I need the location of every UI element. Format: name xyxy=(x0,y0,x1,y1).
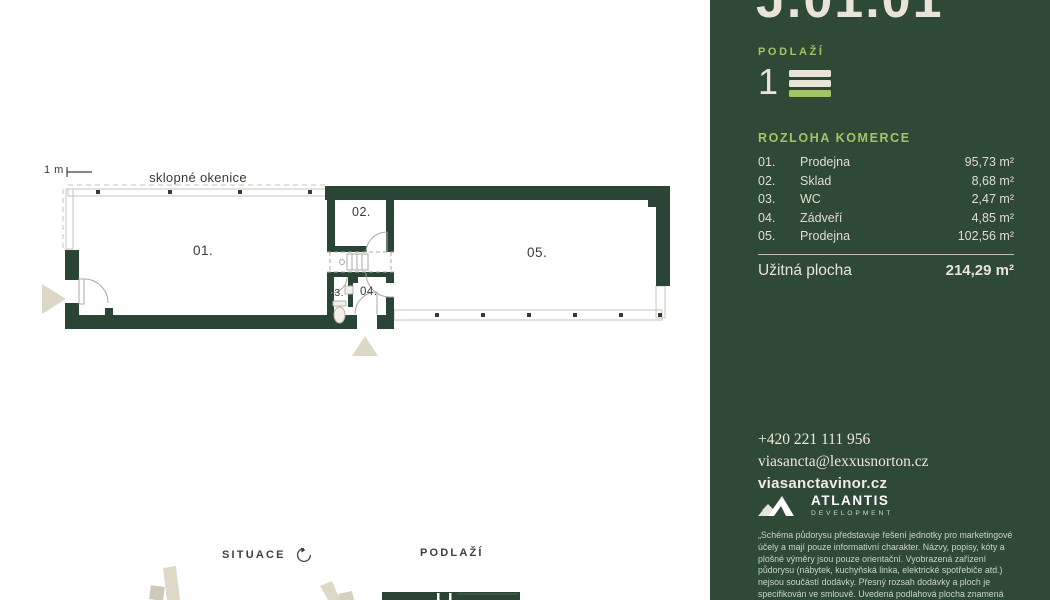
room-number: 02. xyxy=(758,172,800,191)
brand-subtitle: DEVELOPMENT xyxy=(811,510,893,517)
room-name: Prodejna xyxy=(800,227,958,246)
room-label-04: 04. xyxy=(360,286,378,298)
legal-disclaimer: „Schéma půdorysu představuje řešení jedn… xyxy=(758,530,1018,600)
contact-block: +420 221 111 956 viasancta@lexxusnorton.… xyxy=(758,429,929,495)
room-name: Sklad xyxy=(800,172,972,191)
sink-icon xyxy=(345,286,353,294)
floor-heading: PODLAŽÍ xyxy=(758,46,824,58)
area-table: ROZLOHA KOMERCE 01. Prodejna 95,73 m² 02… xyxy=(758,131,1014,280)
scale-label: 1 m xyxy=(44,164,64,176)
brand-name: ATLANTIS xyxy=(811,494,893,508)
atlantis-mountain-icon xyxy=(758,492,802,518)
window-mullions xyxy=(96,190,662,317)
window-shutters-label: sklopné okenice xyxy=(128,170,268,185)
situace-map-fragments xyxy=(149,566,354,600)
contact-email: viasancta@lexxusnorton.cz xyxy=(758,451,929,473)
room-label-05: 05. xyxy=(527,245,547,260)
total-area-row: Užitná plocha 214,29 m² xyxy=(758,262,1014,280)
room-number: 04. xyxy=(758,209,800,228)
mini-floorplan-strip xyxy=(382,592,520,600)
contact-phone: +420 221 111 956 xyxy=(758,429,929,451)
room-number: 01. xyxy=(758,153,800,172)
floorplan-sheet: 1 m sklopné okenice 01. 02. 03. 04. 05. … xyxy=(0,0,1050,600)
total-area-value: 214,29 m² xyxy=(946,262,1014,279)
room-name: WC xyxy=(800,190,972,209)
table-row: 01. Prodejna 95,73 m² xyxy=(758,153,1014,172)
toilet-icon xyxy=(333,301,346,323)
situace-label: SITUACE xyxy=(222,549,286,561)
floor-plan-area: 1 m sklopné okenice 01. 02. 03. 04. 05. … xyxy=(0,0,710,600)
room-area: 4,85 m² xyxy=(972,209,1014,228)
area-table-heading: ROZLOHA KOMERCE xyxy=(758,131,1014,145)
room-name: Prodejna xyxy=(800,153,965,172)
stairs-icon xyxy=(340,254,369,270)
room-area: 102,56 m² xyxy=(958,227,1014,246)
room-label-03: 03. xyxy=(328,287,344,299)
floor-number: 1 xyxy=(758,63,778,101)
table-row: 05. Prodejna 102,56 m² xyxy=(758,227,1014,246)
room-area: 95,73 m² xyxy=(965,153,1014,172)
floor-indicator: 1 xyxy=(758,63,831,101)
room-number: 03. xyxy=(758,190,800,209)
total-divider xyxy=(758,254,1014,255)
room-area: 2,47 m² xyxy=(972,190,1014,209)
room-area: 8,68 m² xyxy=(972,172,1014,191)
table-row: 03. WC 2,47 m² xyxy=(758,190,1014,209)
floor-levels-icon xyxy=(789,70,831,101)
brand-text: ATLANTIS DEVELOPMENT xyxy=(811,494,893,517)
scale-bar-icon xyxy=(67,167,92,177)
developer-logo: ATLANTIS DEVELOPMENT xyxy=(758,492,893,518)
podlazi-bottom-label: PODLAŽÍ xyxy=(420,547,484,559)
room-number: 05. xyxy=(758,227,800,246)
table-row: 02. Sklad 8,68 m² xyxy=(758,172,1014,191)
floor-plan-drawing xyxy=(0,0,710,600)
room-label-01: 01. xyxy=(193,243,213,258)
total-area-label: Užitná plocha xyxy=(758,262,946,280)
unit-info-sidebar: J.01.01 PODLAŽÍ 1 ROZLOHA KOMERCE 01. Pr… xyxy=(710,0,1050,600)
table-row: 04. Zádveří 4,85 m² xyxy=(758,209,1014,228)
room-name: Zádveří xyxy=(800,209,972,228)
room-label-02: 02. xyxy=(352,205,371,219)
situace-section-label: SITUACE xyxy=(222,547,312,563)
compass-icon xyxy=(296,547,312,563)
unit-id-title: J.01.01 xyxy=(756,0,944,30)
opening-dashes xyxy=(327,252,394,272)
podlazi-section-label: PODLAŽÍ xyxy=(420,547,484,559)
